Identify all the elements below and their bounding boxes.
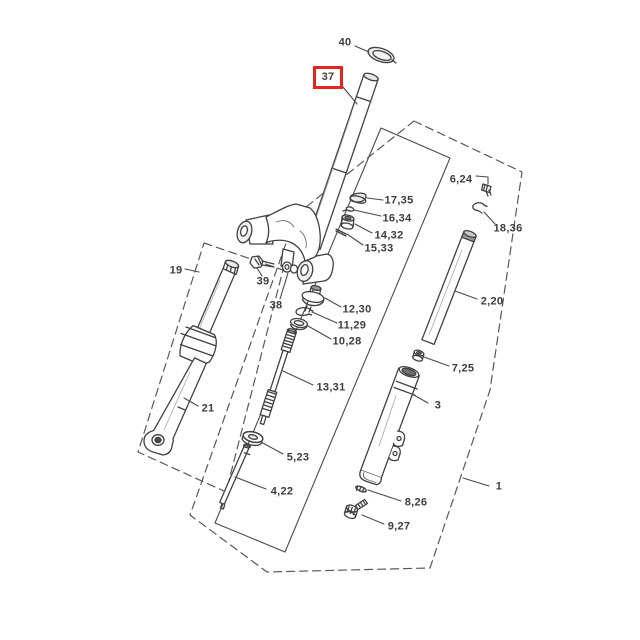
part-cover-40[interactable] [366, 44, 396, 65]
part-label-4-22[interactable]: 4,22 [271, 487, 294, 498]
part-clip-18-36[interactable] [473, 203, 487, 213]
part-inner-tube-2-20[interactable] [422, 229, 477, 344]
highlight-box-37[interactable]: 37 [313, 66, 343, 89]
part-outer-tube-3[interactable] [360, 364, 420, 484]
part-bushing-14-32[interactable] [341, 214, 355, 230]
part-fork-leg-21[interactable] [144, 259, 240, 455]
part-label-21[interactable]: 21 [202, 404, 215, 415]
part-label-37[interactable]: 37 [322, 72, 335, 83]
part-spring-washer-8-26[interactable] [355, 485, 367, 493]
part-label-14-32[interactable]: 14,32 [374, 231, 403, 242]
part-bolt-9-27[interactable] [344, 500, 368, 520]
part-clip-16-34[interactable] [343, 206, 354, 212]
part-label-40[interactable]: 40 [339, 38, 352, 49]
part-rod-4-22[interactable] [220, 444, 251, 509]
part-label-39[interactable]: 39 [257, 277, 270, 288]
part-bushing-7-25[interactable] [412, 349, 424, 362]
part-label-12-30[interactable]: 12,30 [342, 305, 371, 316]
part-label-1[interactable]: 1 [496, 482, 502, 493]
part-label-10-28[interactable]: 10,28 [332, 337, 361, 348]
parts-diagram-canvas: 40 37 17,35 16,34 14,32 15,33 12,30 11,2… [0, 0, 640, 640]
part-label-15-33[interactable]: 15,33 [364, 244, 393, 255]
part-label-8-26[interactable]: 8,26 [405, 498, 428, 509]
part-cap-17-35[interactable] [349, 193, 366, 204]
part-label-38[interactable]: 38 [270, 301, 283, 312]
part-label-5-23[interactable]: 5,23 [287, 453, 310, 464]
part-label-9-27[interactable]: 9,27 [388, 522, 411, 533]
diagram-line-art [0, 0, 640, 640]
part-label-19[interactable]: 19 [170, 266, 183, 277]
part-label-17-35[interactable]: 17,35 [384, 196, 413, 207]
part-label-3[interactable]: 3 [435, 401, 441, 412]
part-bolt-6-24[interactable] [482, 184, 492, 196]
part-ring-10-28[interactable] [290, 317, 308, 329]
part-label-18-36[interactable]: 18,36 [493, 224, 522, 235]
part-damper-rod-13-31[interactable] [260, 328, 297, 425]
part-label-7-25[interactable]: 7,25 [452, 364, 475, 375]
part-label-16-34[interactable]: 16,34 [382, 214, 411, 225]
part-washer-38[interactable] [283, 262, 298, 273]
part-label-2-20[interactable]: 2,20 [481, 297, 504, 308]
part-label-6-24[interactable]: 6,24 [450, 175, 473, 186]
part-pinch-bolt-39[interactable] [250, 256, 274, 268]
part-label-13-31[interactable]: 13,31 [316, 383, 345, 394]
part-label-11-29[interactable]: 11,29 [338, 321, 366, 332]
